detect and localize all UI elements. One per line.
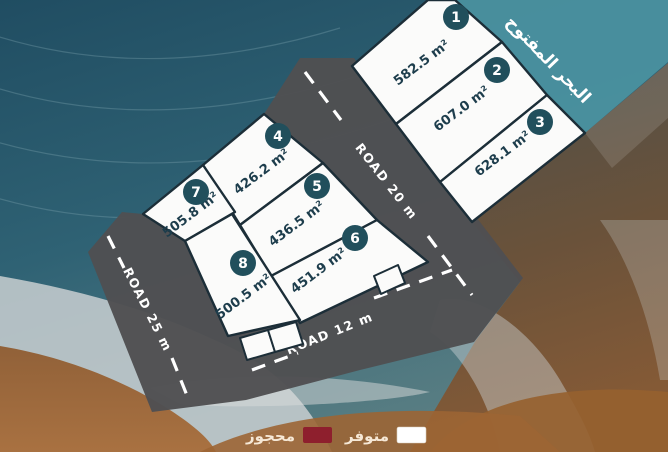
plot-6-number: 6 — [350, 231, 360, 247]
plot-2-number: 2 — [492, 63, 502, 79]
plot-1-number: 1 — [451, 10, 461, 26]
legend-reserved-label: محجوز — [245, 427, 295, 445]
plot-3-number: 3 — [535, 115, 545, 131]
plot-4-number: 4 — [273, 129, 283, 145]
plot-5-number: 5 — [312, 179, 322, 195]
plot-map: ROAD 20 m ROAD 12 m ROAD 25 m البحر المف… — [0, 0, 668, 452]
plot-7-number: 7 — [191, 185, 201, 201]
plot-8-number: 8 — [238, 256, 248, 272]
legend-available-swatch — [397, 427, 426, 443]
legend-reserved-swatch — [303, 427, 332, 443]
legend-available-label: متوفر — [344, 427, 389, 445]
